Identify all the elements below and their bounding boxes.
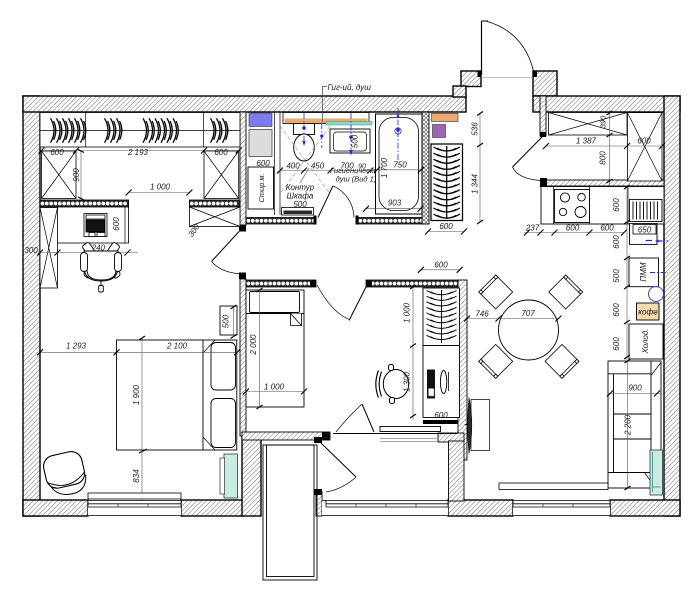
svg-text:1 000: 1 000 [264,383,285,392]
svg-text:1 387: 1 387 [576,137,597,146]
svg-text:кофе: кофе [638,308,658,317]
svg-text:750: 750 [393,161,407,170]
svg-text:2 200: 2 200 [624,414,633,436]
svg-text:600: 600 [637,137,651,146]
svg-text:746: 746 [475,310,489,319]
svg-text:536: 536 [471,122,480,136]
svg-text:Холод.: Холод. [641,328,650,354]
svg-text:1 900: 1 900 [132,384,141,405]
svg-text:400: 400 [286,162,300,171]
svg-text:ПММ: ПММ [639,262,648,281]
svg-text:600: 600 [434,261,448,270]
svg-text:1 700: 1 700 [380,157,389,178]
svg-text:600: 600 [50,148,64,157]
svg-text:903: 903 [388,199,402,208]
svg-text:390: 390 [599,115,608,128]
svg-text:600: 600 [439,222,453,231]
svg-text:834: 834 [132,469,141,483]
svg-text:2 100: 2 100 [166,342,188,351]
svg-text:1 000: 1 000 [150,183,171,192]
svg-text:600: 600 [612,303,621,317]
svg-text:1 000: 1 000 [403,302,412,323]
svg-text:900: 900 [72,168,81,182]
svg-text:Гиг-ий. душ: Гиг-ий. душ [328,83,372,92]
svg-text:600: 600 [112,217,121,231]
svg-text:900: 900 [628,384,642,393]
svg-text:душ (Вид 1): душ (Вид 1) [336,175,377,184]
svg-text:600: 600 [256,159,270,168]
svg-text:2 193: 2 193 [127,148,149,157]
svg-text:650: 650 [638,226,652,235]
svg-text:500: 500 [351,134,360,148]
svg-text:600: 600 [214,148,228,157]
svg-text:1 300: 1 300 [403,371,412,392]
svg-text:300: 300 [24,246,38,255]
svg-text:500: 500 [222,314,231,328]
svg-text:600: 600 [612,198,621,212]
svg-text:707: 707 [521,309,535,318]
svg-text:600: 600 [612,235,621,249]
svg-text:800: 800 [599,151,608,165]
svg-text:600: 600 [434,411,448,420]
svg-text:600: 600 [600,224,614,233]
svg-text:1 344: 1 344 [471,173,480,194]
svg-text:450: 450 [311,162,325,171]
svg-text:237: 237 [525,224,540,233]
svg-text:Стир.м.: Стир.м. [257,173,266,202]
svg-text:600: 600 [566,224,580,233]
svg-text:2 000: 2 000 [249,334,258,356]
svg-text:500: 500 [612,269,621,283]
svg-text:600: 600 [612,337,621,351]
svg-text:1 293: 1 293 [66,342,87,351]
